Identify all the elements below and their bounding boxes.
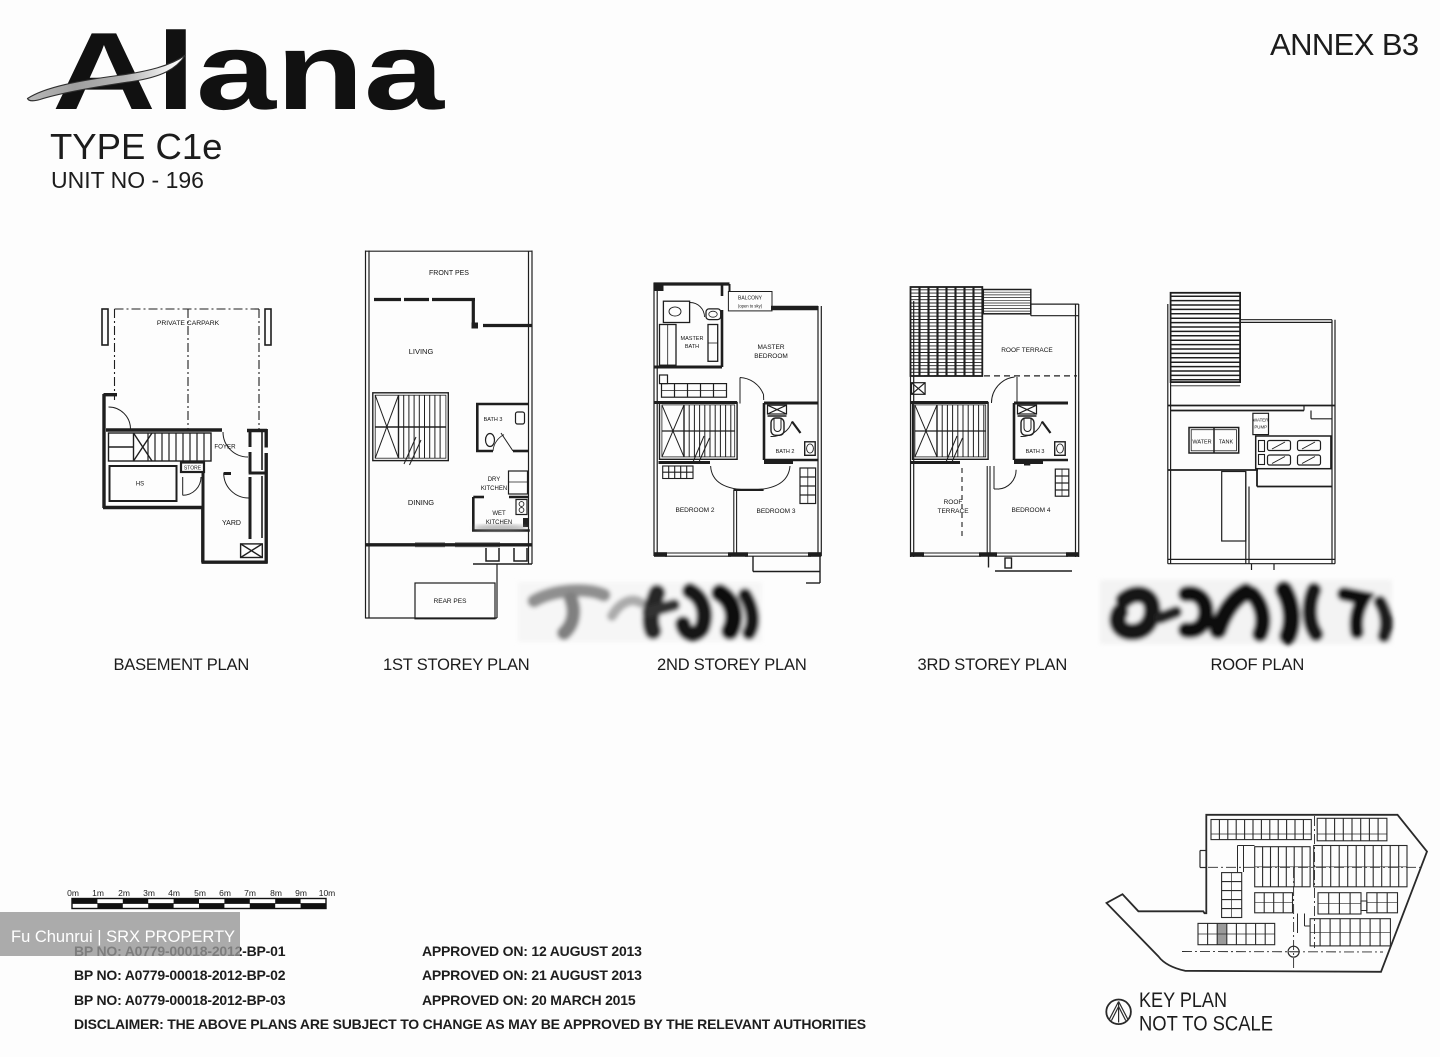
svg-text:8m: 8m — [270, 888, 282, 898]
svg-text:9m: 9m — [295, 888, 307, 898]
svg-text:BP NO: A0779-00018-2012-BP-03: BP NO: A0779-00018-2012-BP-03 — [74, 992, 286, 1008]
svg-text:2ND STOREY PLAN: 2ND STOREY PLAN — [657, 656, 807, 674]
svg-text:STORE: STORE — [184, 466, 202, 472]
svg-text:APPROVED ON: 12 AUGUST 2013: APPROVED ON: 12 AUGUST 2013 — [422, 943, 642, 959]
svg-text:10m: 10m — [319, 888, 336, 898]
svg-text:DRY: DRY — [488, 477, 501, 483]
svg-text:PRIVATE CARPARK: PRIVATE CARPARK — [157, 320, 220, 327]
svg-text:ROOF: ROOF — [944, 499, 963, 506]
svg-text:TANK: TANK — [1219, 440, 1234, 446]
svg-text:ROOF TERRACE: ROOF TERRACE — [1001, 347, 1053, 354]
svg-text:PUMP: PUMP — [1254, 425, 1267, 430]
svg-text:APPROVED ON: 21 AUGUST 2013: APPROVED ON: 21 AUGUST 2013 — [422, 967, 642, 983]
svg-text:0m: 0m — [67, 888, 79, 898]
svg-text:TYPE C1e: TYPE C1e — [50, 126, 222, 167]
svg-text:6m: 6m — [219, 888, 231, 898]
svg-text:BEDROOM 2: BEDROOM 2 — [675, 507, 714, 514]
svg-text:YARD: YARD — [222, 520, 241, 527]
svg-text:KITCHEN: KITCHEN — [481, 486, 507, 492]
svg-text:DINING: DINING — [408, 498, 434, 507]
svg-text:BEDROOM: BEDROOM — [754, 353, 788, 360]
svg-text:BATH 2: BATH 2 — [776, 449, 795, 455]
svg-text:ROOF PLAN: ROOF PLAN — [1211, 656, 1305, 674]
svg-text:HS: HS — [136, 482, 144, 488]
svg-text:UNIT NO - 196: UNIT NO - 196 — [51, 167, 204, 193]
svg-text:MASTER: MASTER — [757, 344, 784, 351]
svg-text:ANNEX B3: ANNEX B3 — [1270, 27, 1419, 62]
svg-text:Fu Chunrui | SRX PROPERTY: Fu Chunrui | SRX PROPERTY — [11, 928, 235, 946]
svg-text:WATER: WATER — [1192, 440, 1211, 446]
svg-text:BEDROOM 4: BEDROOM 4 — [1011, 507, 1050, 514]
svg-text:DISCLAIMER: THE ABOVE PLANS AR: DISCLAIMER: THE ABOVE PLANS ARE SUBJECT … — [74, 1016, 866, 1032]
svg-text:Alana: Alana — [52, 10, 445, 133]
svg-text:KEY PLAN: KEY PLAN — [1139, 988, 1227, 1012]
svg-text:2m: 2m — [118, 888, 130, 898]
svg-text:FRONT PES: FRONT PES — [429, 270, 469, 277]
svg-text:TERRACE: TERRACE — [937, 508, 969, 515]
svg-text:1ST STOREY PLAN: 1ST STOREY PLAN — [383, 656, 529, 674]
svg-text:5m: 5m — [194, 888, 206, 898]
svg-text:WATER: WATER — [1253, 418, 1268, 423]
svg-text:FOYER: FOYER — [214, 444, 236, 451]
svg-text:BATH 3: BATH 3 — [1026, 449, 1045, 455]
svg-text:(open to sky): (open to sky) — [738, 304, 763, 309]
svg-text:BATH 3: BATH 3 — [484, 417, 503, 423]
svg-text:BEDROOM 3: BEDROOM 3 — [756, 508, 795, 515]
svg-text:WET: WET — [492, 511, 506, 517]
svg-text:MASTER: MASTER — [681, 336, 704, 342]
svg-text:3m: 3m — [143, 888, 155, 898]
svg-text:4m: 4m — [168, 888, 180, 898]
svg-text:LIVING: LIVING — [409, 347, 434, 356]
svg-text:APPROVED ON: 20 MARCH 2015: APPROVED ON: 20 MARCH 2015 — [422, 992, 636, 1008]
svg-text:BASEMENT PLAN: BASEMENT PLAN — [114, 656, 250, 674]
svg-text:BATH: BATH — [685, 344, 699, 350]
svg-text:3RD STOREY PLAN: 3RD STOREY PLAN — [918, 656, 1068, 674]
svg-text:NOT TO SCALE: NOT TO SCALE — [1139, 1012, 1273, 1036]
svg-text:BP NO: A0779-00018-2012-BP-02: BP NO: A0779-00018-2012-BP-02 — [74, 967, 286, 983]
svg-text:BALCONY: BALCONY — [738, 296, 763, 302]
svg-text:REAR PES: REAR PES — [434, 598, 468, 605]
svg-text:1m: 1m — [92, 888, 104, 898]
svg-text:7m: 7m — [244, 888, 256, 898]
